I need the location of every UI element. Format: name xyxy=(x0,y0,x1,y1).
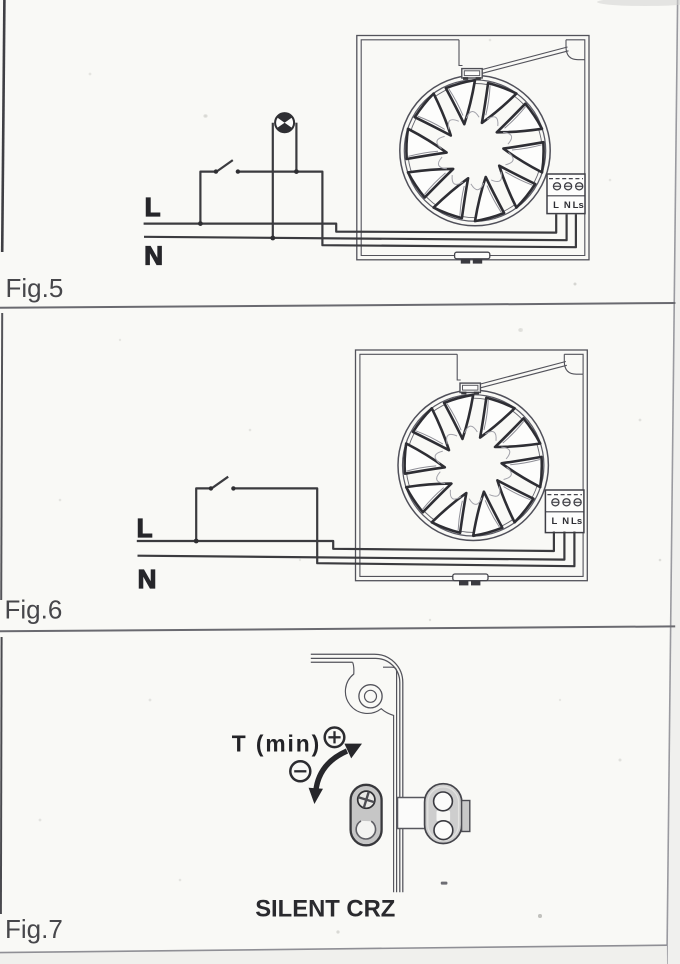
svg-text:Ls: Ls xyxy=(573,200,584,211)
svg-text:N: N xyxy=(562,516,569,527)
svg-text:Fig.7: Fig.7 xyxy=(5,914,63,944)
svg-text:L: L xyxy=(145,192,161,222)
svg-text:L: L xyxy=(551,516,557,527)
svg-text:Ls: Ls xyxy=(571,516,582,527)
svg-text:T (min): T (min) xyxy=(232,731,321,757)
svg-text:N: N xyxy=(138,564,157,594)
svg-text:L: L xyxy=(137,513,153,543)
svg-text:Fig.6: Fig.6 xyxy=(5,595,63,625)
svg-text:SILENT CRZ: SILENT CRZ xyxy=(255,896,395,923)
svg-text:L: L xyxy=(553,200,559,211)
svg-text:Fig.5: Fig.5 xyxy=(6,273,64,303)
svg-text:N: N xyxy=(564,200,571,211)
svg-text:N: N xyxy=(144,241,163,271)
